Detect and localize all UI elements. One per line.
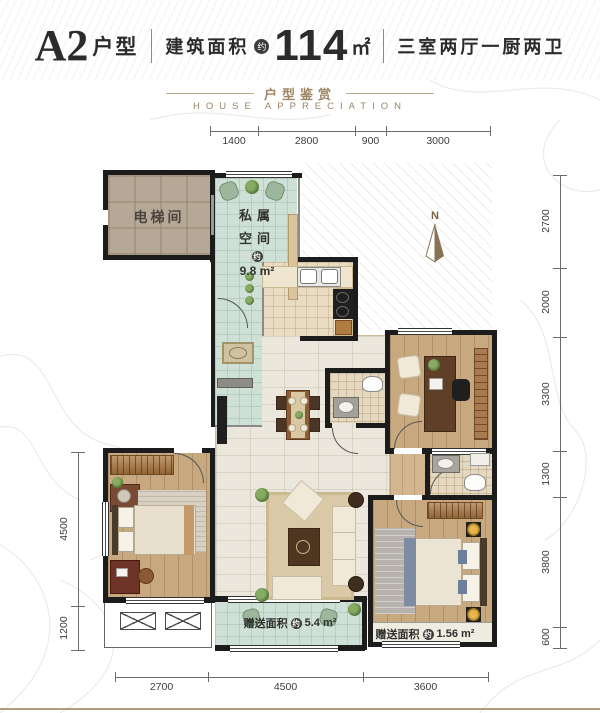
gift-area-bay-label: 赠送面积 约 1.56 m² [375,626,475,642]
plant [428,359,440,371]
cushion [458,550,467,564]
dim-tick [553,337,567,338]
entry-rug-medallion [229,347,247,359]
wall [103,225,108,260]
dim-left-4500: 4500 [58,499,70,559]
unit-name: A2 [35,24,89,68]
daybed [272,576,322,600]
area-unit: ㎡ [351,33,370,60]
dim-right-3300: 3300 [540,364,552,424]
bookshelf [474,348,488,440]
dim-tick [553,268,567,269]
approx-badge: 约 [254,39,269,54]
mirror [117,489,131,503]
plate [288,397,296,405]
sofa-cushion-line [332,559,356,560]
dim-line-right [560,175,561,648]
dim-tick [553,648,567,649]
floorplan-page: A2 户型 建筑面积 约 114 ㎡ 三室两厅一厨两卫 户型鉴赏 HOUSE A… [0,0,600,713]
gift-label-text: 赠送面积 [376,626,420,642]
dim-tick [488,672,489,682]
toilet [464,474,486,491]
dim-line-bottom [115,677,488,678]
wall [325,368,330,428]
north-label: N [424,210,446,222]
wall [211,262,215,427]
dim-top-2800: 2800 [258,135,355,147]
ac-platform [120,612,156,630]
subtitle-en: HOUSE APPRECIATION [0,101,600,112]
tv-cabinet [217,396,227,444]
dim-bottom-3600: 3600 [363,681,488,693]
window [126,597,204,604]
plant [245,284,254,293]
area-value: 114 [274,24,348,68]
wall [362,596,367,650]
dim-tick [553,627,567,628]
gift-label-text: 赠送面积 [244,615,288,631]
dim-tick [71,606,85,607]
sofa [332,506,356,586]
private-space-label: 私属 空间 约 9.8 m² [221,205,293,278]
wall [325,423,332,428]
dim-top-3000: 3000 [386,135,490,147]
console-table [217,378,253,388]
private-line1: 私属 [221,205,293,224]
wall [210,448,215,601]
wall [103,448,174,453]
plant [255,588,269,602]
kitchen-cart [335,320,352,335]
gift-label-value: 5.4 m² [305,617,337,629]
dim-tick [553,497,567,498]
plant [112,477,123,488]
side-table [348,576,364,592]
sink [437,458,454,469]
dim-bottom-2700: 2700 [115,681,208,693]
office-chair [452,379,470,401]
burner [336,306,349,317]
window [102,502,109,556]
elevator-label: 电梯间 [108,207,210,227]
bath-cabinet [470,453,490,466]
nightstand-lamp [466,607,481,622]
gift-area-balcony-label: 赠送面积 约 5.4 m² [230,615,350,631]
private-area-value: 9.8 m² [221,264,293,278]
cushion [458,580,467,594]
approx-badge-small: 约 [291,618,302,629]
window [382,641,460,648]
dim-tick [553,451,567,452]
side-table [348,492,364,508]
title-divider-2 [383,29,384,63]
dim-right-600: 600 [540,607,552,667]
plate [300,397,308,405]
dim-right-2000: 2000 [540,272,552,332]
pillow [118,507,134,528]
wall [103,255,215,260]
centerpiece [295,411,303,419]
private-line2: 空间 [221,228,293,247]
wall [356,423,390,428]
plant [245,296,254,305]
gift-label-value: 1.56 m² [437,628,475,640]
dim-bottom-4500: 4500 [208,681,363,693]
dim-line-left [78,452,79,650]
title-divider [151,29,152,63]
wardrobe [427,502,483,519]
wall [325,368,390,373]
plant [245,180,259,194]
bed-runner [404,538,416,606]
ac-platform [165,612,201,630]
burner [336,292,349,303]
subtitle-line-left [166,93,254,94]
guest-chair [397,355,422,380]
dim-tick [490,126,491,136]
wall [297,257,358,262]
wall [103,170,108,210]
plate [288,424,296,432]
wall [103,453,108,502]
papers [116,568,128,577]
writing-desk [110,560,140,594]
compass-needle-icon [424,222,446,266]
area-label: 建筑面积 [165,33,249,59]
bed-throw [184,505,194,555]
sink-basin [321,269,338,284]
dim-right-3800: 3800 [540,532,552,592]
laptop [429,378,443,390]
dim-top-1400: 1400 [210,135,258,147]
header-title-row: A2 户型 建筑面积 约 114 ㎡ 三室两厅一厨两卫 [0,24,600,68]
nightstand-lamp [466,522,481,537]
plant [255,488,269,502]
wall [353,257,358,341]
plate [300,424,308,432]
pillow [118,531,134,552]
desk-chair [138,568,154,584]
window [226,171,292,178]
dim-tick [71,452,85,453]
window [398,328,452,335]
sink-basin [300,269,317,284]
rooms-description: 三室两厅一厨两卫 [397,33,565,59]
wall [103,556,108,602]
dim-tick [71,650,85,651]
approx-badge-small: 约 [252,251,263,262]
wall [368,500,373,647]
headboard [480,538,487,606]
wall [300,336,358,341]
dim-left-1200: 1200 [58,598,70,658]
toilet [362,376,383,392]
unit-suffix: 户型 [92,31,138,61]
approx-badge-small: 约 [423,629,434,640]
wall [385,335,390,453]
dim-right-1300: 1300 [540,444,552,504]
wall [422,495,497,500]
footer-rule [0,708,600,710]
sofa-cushion-line [332,532,356,533]
hallway-floor [390,454,425,495]
subtitle-line-right [346,93,434,94]
dim-top-900: 900 [355,135,386,147]
window [230,645,338,652]
wardrobe [110,455,174,475]
guest-chair [397,393,422,418]
dim-line-top [210,131,490,132]
sink [338,401,354,413]
wall [492,330,497,647]
elevator-door [211,195,214,235]
tray [296,540,310,554]
dim-right-2700: 2700 [540,191,552,251]
wall [103,170,215,175]
dim-tick [553,175,567,176]
wall [298,178,300,258]
